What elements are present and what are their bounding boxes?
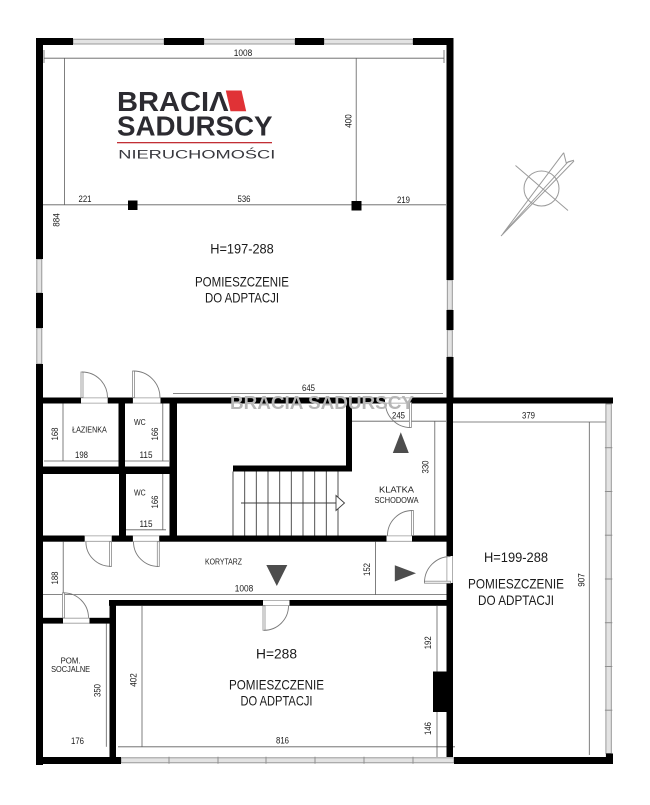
svg-text:166: 166 (150, 496, 160, 509)
svg-text:ŁAZIENKA: ŁAZIENKA (72, 425, 107, 435)
svg-text:188: 188 (50, 572, 60, 585)
svg-text:DO ADPTACJI: DO ADPTACJI (205, 290, 279, 306)
svg-text:H=288: H=288 (256, 646, 297, 662)
svg-text:KORYTARZ: KORYTARZ (205, 557, 242, 567)
svg-text:POMIESZCZENIE: POMIESZCZENIE (195, 274, 289, 290)
svg-text:221: 221 (79, 194, 92, 204)
svg-text:816: 816 (276, 736, 289, 746)
svg-text:H=199-288: H=199-288 (484, 549, 548, 565)
svg-text:SCHODOWA: SCHODOWA (375, 495, 419, 505)
svg-text:146: 146 (423, 722, 433, 735)
svg-text:536: 536 (238, 194, 251, 204)
svg-text:168: 168 (50, 428, 60, 441)
svg-text:WC: WC (134, 417, 146, 427)
svg-text:BRACIA SADURSCY: BRACIA SADURSCY (230, 392, 415, 413)
svg-text:907: 907 (576, 573, 586, 587)
svg-text:H=197-288: H=197-288 (210, 241, 274, 257)
svg-text:402: 402 (129, 673, 139, 687)
svg-text:166: 166 (150, 428, 160, 441)
svg-text:884: 884 (52, 213, 62, 227)
svg-text:379: 379 (522, 411, 535, 421)
svg-text:152: 152 (362, 563, 372, 576)
svg-text:400: 400 (344, 114, 354, 128)
svg-text:KLATKA: KLATKA (379, 485, 414, 495)
svg-text:219: 219 (397, 195, 410, 205)
svg-text:176: 176 (71, 736, 84, 746)
svg-text:192: 192 (423, 636, 433, 649)
svg-text:350: 350 (93, 684, 103, 697)
svg-text:DO ADPTACJI: DO ADPTACJI (241, 693, 313, 709)
svg-text:DO ADPTACJI: DO ADPTACJI (478, 592, 554, 608)
svg-text:SOCJALNE: SOCJALNE (51, 664, 90, 674)
svg-text:SADURSCY: SADURSCY (117, 111, 273, 142)
svg-text:1008: 1008 (234, 48, 253, 58)
svg-text:1008: 1008 (235, 584, 254, 594)
svg-text:POMIESZCZENIE: POMIESZCZENIE (229, 677, 324, 693)
svg-text:115: 115 (140, 450, 153, 460)
svg-text:WC: WC (134, 488, 146, 498)
svg-text:NIERUCHOMOŚCI: NIERUCHOMOŚCI (118, 149, 275, 162)
svg-text:115: 115 (140, 519, 153, 529)
svg-text:POMIESZCZENIE: POMIESZCZENIE (468, 576, 564, 592)
svg-text:330: 330 (420, 461, 430, 474)
svg-text:198: 198 (75, 450, 88, 460)
